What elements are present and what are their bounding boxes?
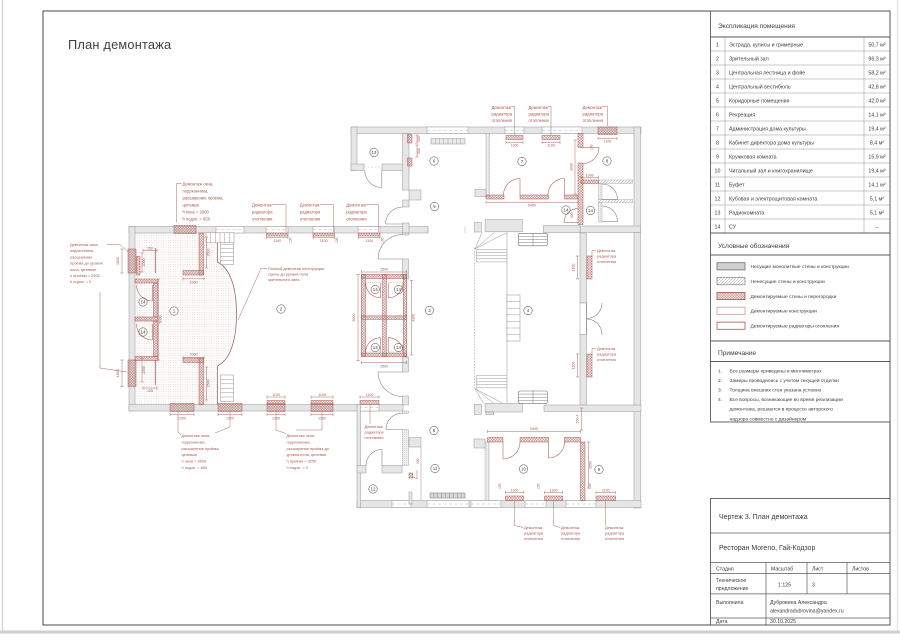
svg-text:14: 14 [373, 345, 378, 350]
svg-text:Эстрада, кулисы и гримерные: Эстрада, кулисы и гримерные [729, 42, 803, 48]
svg-text:1100: 1100 [602, 489, 610, 493]
svg-text:Демонтажрадиатораотопления: Демонтажрадиатораотопления [252, 203, 273, 222]
svg-text:10: 10 [521, 467, 526, 472]
svg-text:13: 13 [372, 150, 377, 155]
svg-text:1100: 1100 [550, 489, 558, 493]
svg-text:1: 1 [716, 42, 719, 48]
svg-text:5,1 м²: 5,1 м² [870, 196, 884, 202]
svg-text:1100: 1100 [604, 140, 612, 144]
svg-text:--: -- [875, 224, 879, 230]
svg-text:1000: 1000 [142, 366, 146, 374]
svg-text:11: 11 [433, 466, 438, 471]
svg-text:Экспликация помещения: Экспликация помещения [718, 23, 795, 30]
svg-text:1100: 1100 [511, 144, 519, 148]
svg-text:1100: 1100 [365, 239, 373, 243]
svg-text:1:125: 1:125 [778, 583, 791, 589]
svg-text:8,4 м²: 8,4 м² [870, 140, 884, 146]
svg-text:2500: 2500 [207, 249, 211, 257]
svg-text:Масштаб: Масштаб [771, 567, 793, 573]
svg-text:1100: 1100 [272, 393, 280, 397]
svg-text:5,1 м²: 5,1 м² [870, 210, 884, 216]
svg-text:Кабинет директора дома культур: Кабинет директора дома культуры [729, 140, 814, 146]
svg-text:14: 14 [396, 345, 401, 350]
svg-text:1000: 1000 [190, 280, 198, 284]
svg-text:Выполнила: Выполнила [716, 600, 744, 606]
svg-text:Ненесущие стены и конструкции: Ненесущие стены и конструкции [751, 279, 825, 285]
svg-text:Демонтажрадиатораотопления: Демонтажрадиатораотопления [583, 105, 604, 123]
svg-text:14: 14 [396, 287, 401, 292]
svg-text:3: 3 [812, 583, 815, 589]
svg-text:Ресторан Moreno, Гай-Кодзор: Ресторан Moreno, Гай-Кодзор [719, 544, 815, 552]
svg-text:13: 13 [715, 210, 721, 216]
svg-text:14: 14 [564, 208, 569, 213]
svg-text:155: 155 [147, 389, 153, 393]
svg-text:14,1 м²: 14,1 м² [868, 182, 885, 188]
svg-text:План демонтажа: План демонтажа [68, 37, 172, 52]
svg-text:3650: 3650 [589, 461, 593, 469]
svg-text:100: 100 [588, 483, 592, 489]
svg-text:Условные обозначения: Условные обозначения [718, 242, 790, 250]
svg-text:Кубовая и электрощитовая комна: Кубовая и электрощитовая комната [729, 196, 817, 202]
svg-text:Демонтажрадиатораотопления: Демонтажрадиатораотопления [524, 525, 544, 541]
svg-text:Демонтажрадиатораотопления: Демонтажрадиатораотопления [597, 248, 617, 264]
svg-text:5000: 5000 [352, 314, 356, 322]
svg-text:300: 300 [416, 458, 420, 464]
svg-text:3: 3 [716, 70, 719, 76]
svg-text:Коридорные помещения: Коридорные помещения [729, 98, 790, 104]
svg-text:Чертеж 3. План демонтажа: Чертеж 3. План демонтажа [719, 514, 808, 521]
svg-text:Несущие монолитные стены и кон: Несущие монолитные стены и конструкции [751, 264, 850, 270]
svg-text:14,1 м²: 14,1 м² [868, 112, 885, 118]
svg-text:Демонтажрадиатораотопления: Демонтажрадиатораотопления [346, 203, 367, 222]
svg-text:100: 100 [381, 237, 385, 243]
svg-text:Дубровина Александра: Дубровина Александра [770, 600, 827, 606]
svg-text:Стадия: Стадия [716, 567, 734, 573]
svg-text:19,4 м²: 19,4 м² [868, 126, 885, 132]
svg-text:Все размеры приведены в миллим: Все размеры приведены в миллиметрах [730, 369, 823, 375]
svg-text:5400: 5400 [528, 204, 536, 208]
svg-text:50,7 м²: 50,7 м² [868, 42, 885, 48]
svg-text:2500: 2500 [380, 268, 388, 272]
svg-text:500: 500 [417, 148, 421, 154]
svg-text:15,9 м²: 15,9 м² [868, 154, 885, 160]
svg-text:надзора совместно с дизайнером: надзора совместно с дизайнером [730, 415, 807, 422]
svg-text:5000: 5000 [159, 316, 163, 324]
svg-text:7: 7 [716, 126, 719, 132]
svg-text:1.: 1. [718, 369, 722, 375]
svg-text:Толщина внешних стен указана у: Толщина внешних стен указана условно [730, 388, 822, 394]
svg-text:1100: 1100 [511, 489, 519, 493]
svg-text:150,4: 150,4 [576, 415, 580, 424]
svg-text:42,0 м²: 42,0 м² [868, 98, 885, 104]
svg-text:12: 12 [371, 487, 376, 492]
svg-text:Все вопросы, возникающие во вр: Все вопросы, возникающие во время реализ… [730, 397, 843, 403]
svg-text:Демонтажрадиатораотопления: Демонтажрадиатораотопления [597, 346, 617, 362]
svg-text:Центральный вестибюль: Центральный вестибюль [729, 83, 791, 90]
svg-text:4300: 4300 [412, 314, 416, 322]
svg-text:2500: 2500 [380, 365, 388, 369]
svg-text:14: 14 [588, 208, 593, 213]
svg-text:Демонтажрадиатораотопления: Демонтажрадиатораотопления [365, 424, 385, 440]
svg-text:58,2 м²: 58,2 м² [868, 70, 885, 76]
svg-text:Примечание: Примечание [718, 350, 756, 357]
svg-text:1100: 1100 [547, 144, 555, 148]
svg-text:500: 500 [570, 212, 574, 218]
svg-text:150: 150 [147, 246, 153, 250]
svg-text:1000: 1000 [586, 174, 594, 178]
svg-text:1100: 1100 [366, 393, 374, 397]
svg-text:3.: 3. [718, 388, 722, 394]
svg-text:alexandradubrovina@yandex.ru: alexandradubrovina@yandex.ru [770, 609, 844, 615]
svg-text:Демонтажрадиатораотопления: Демонтажрадиатораотопления [492, 105, 513, 123]
svg-text:100: 100 [498, 483, 502, 489]
svg-text:Администрация дома культуры: Администрация дома культуры [729, 126, 806, 132]
svg-text:Демонтажрадиатораотопления: Демонтажрадиатораотопления [605, 525, 625, 541]
svg-text:4.: 4. [718, 397, 722, 403]
svg-text:14: 14 [141, 330, 146, 335]
svg-text:СУ: СУ [729, 224, 737, 230]
svg-text:300: 300 [417, 136, 421, 142]
svg-text:12: 12 [715, 196, 721, 202]
svg-text:Центральная лестница и фойе: Центральная лестница и фойе [729, 69, 805, 76]
svg-text:30.10.2025: 30.10.2025 [770, 619, 796, 625]
svg-text:42,8 м²: 42,8 м² [868, 84, 885, 90]
svg-text:5: 5 [716, 98, 719, 104]
svg-text:1800: 1800 [116, 257, 120, 265]
svg-text:Лист: Лист [812, 567, 824, 573]
svg-text:10: 10 [715, 168, 721, 174]
svg-text:11: 11 [715, 182, 721, 188]
svg-text:Демонтажрадиатораотопления: Демонтажрадиатораотопления [561, 525, 581, 541]
svg-text:3600: 3600 [570, 163, 574, 171]
svg-text:2.: 2. [718, 378, 722, 384]
svg-text:Замеры проводились с учетом те: Замеры проводились с учетом текущей отде… [730, 377, 840, 384]
svg-text:6: 6 [716, 112, 719, 118]
svg-text:14: 14 [715, 224, 721, 230]
svg-text:5400: 5400 [530, 427, 538, 431]
svg-text:96,3 м²: 96,3 м² [868, 56, 885, 62]
svg-text:4: 4 [716, 84, 719, 90]
svg-text:Кружковая комната: Кружковая комната [729, 154, 777, 160]
svg-text:100: 100 [537, 483, 541, 489]
svg-text:100: 100 [590, 144, 594, 150]
svg-text:Зрительный зал: Зрительный зал [729, 55, 769, 62]
svg-text:1000: 1000 [142, 259, 146, 267]
svg-text:8: 8 [716, 140, 719, 146]
svg-text:Листов: Листов [852, 567, 869, 573]
svg-text:1200: 1200 [178, 417, 186, 421]
svg-text:Демонтируемые радиаторы отопле: Демонтируемые радиаторы отопления [751, 324, 840, 330]
svg-text:Рекреация: Рекреация [729, 112, 755, 118]
svg-text:14: 14 [373, 287, 378, 292]
svg-text:предложение: предложение [716, 586, 749, 592]
svg-text:Техническое: Техническое [716, 578, 746, 584]
svg-text:демонтажа, решаются в процессе: демонтажа, решаются в процессе авторског… [730, 408, 834, 413]
svg-text:1100: 1100 [320, 239, 328, 243]
svg-text:19,4 м²: 19,4 м² [868, 168, 885, 174]
svg-text:Демонтажрадиатораотопления: Демонтажрадиатораотопления [529, 105, 550, 123]
svg-text:Читальный зал и книгохранилище: Читальный зал и книгохранилище [729, 167, 813, 174]
svg-text:Демонтажрадиатораотопления: Демонтажрадиатораотопления [300, 203, 321, 222]
svg-text:1100: 1100 [318, 393, 326, 397]
svg-text:2500: 2500 [207, 380, 211, 388]
svg-text:14: 14 [141, 300, 146, 305]
svg-text:Радиокомната: Радиокомната [729, 210, 764, 216]
svg-text:1000: 1000 [190, 353, 198, 357]
svg-text:100: 100 [289, 237, 293, 243]
svg-text:1100: 1100 [572, 264, 576, 272]
svg-text:100: 100 [335, 237, 339, 243]
svg-text:Дата: Дата [716, 619, 728, 625]
svg-text:9: 9 [716, 154, 719, 160]
svg-text:Буфет: Буфет [729, 182, 745, 188]
svg-text:Демонтируемые конструкции: Демонтируемые конструкции [751, 309, 818, 315]
svg-text:Демонтируемые стены и перегоро: Демонтируемые стены и перегородки [751, 294, 837, 300]
svg-text:2: 2 [716, 56, 719, 62]
svg-text:1100: 1100 [273, 239, 281, 243]
svg-text:1100: 1100 [572, 362, 576, 370]
